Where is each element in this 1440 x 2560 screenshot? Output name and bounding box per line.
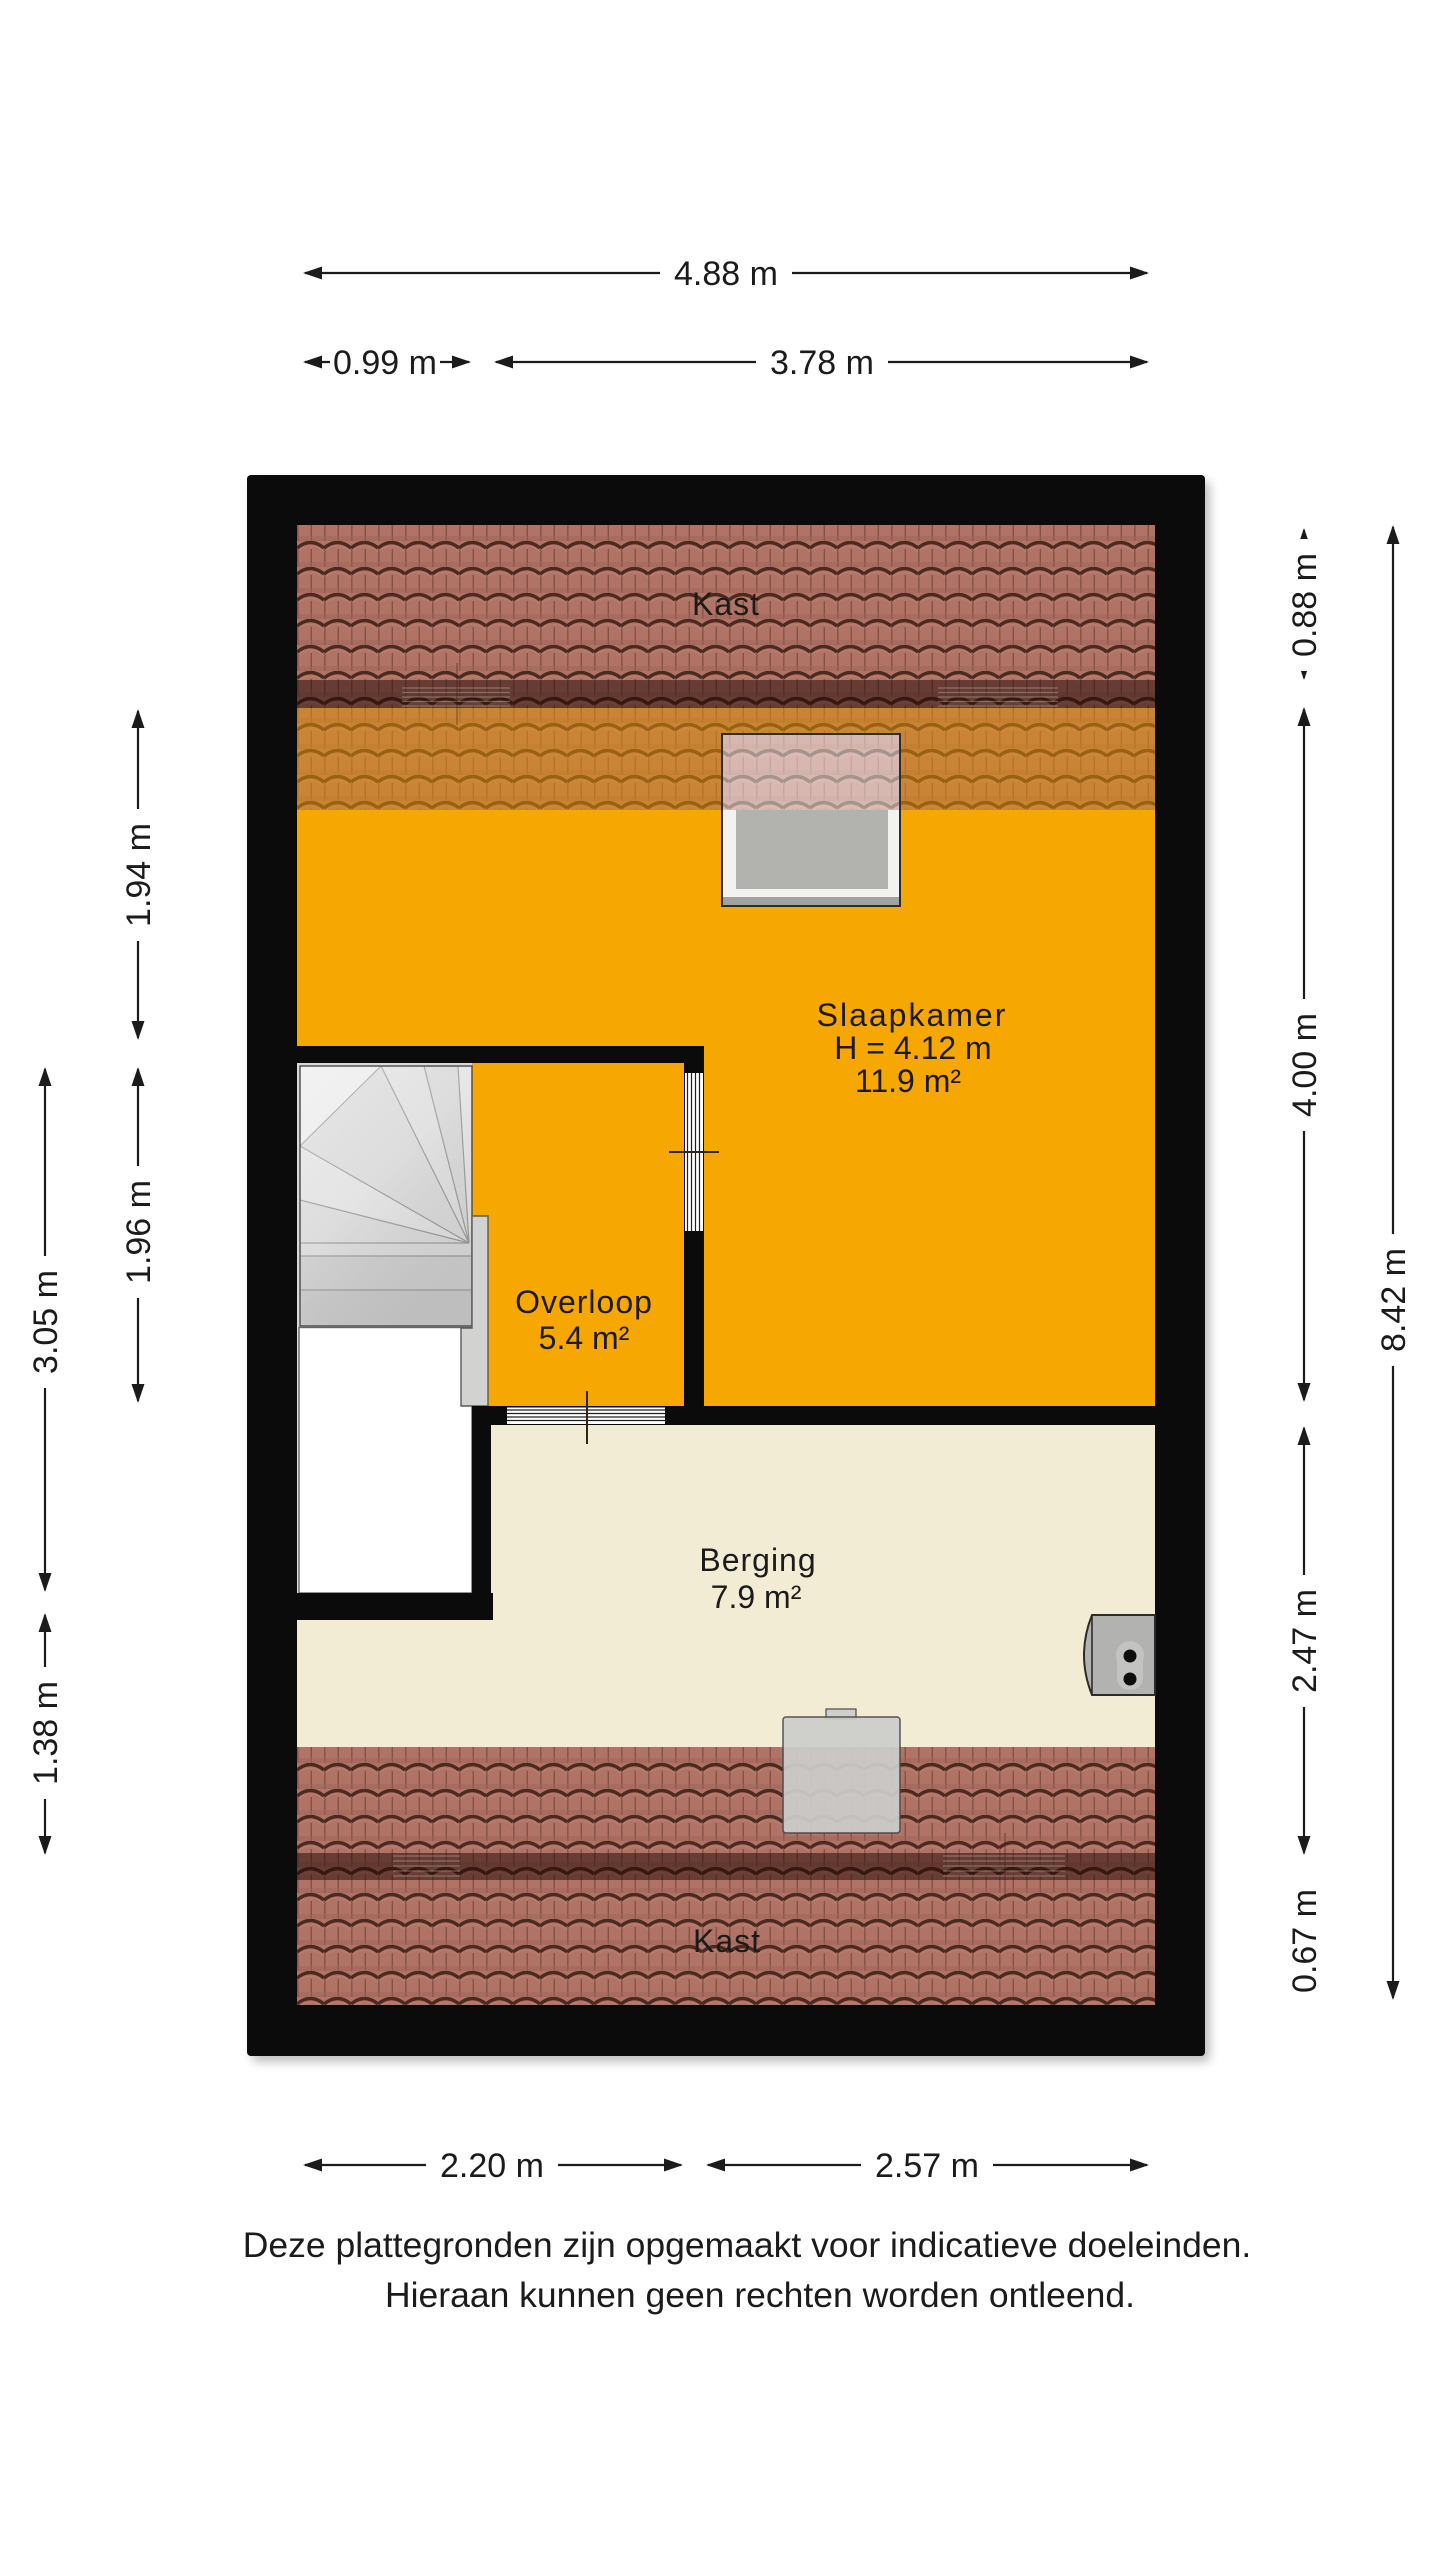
svg-text:3.05 m: 3.05 m bbox=[27, 1270, 65, 1374]
svg-text:2.57 m: 2.57 m bbox=[875, 2147, 979, 2185]
svg-text:1.96 m: 1.96 m bbox=[120, 1180, 158, 1284]
svg-text:Berging: Berging bbox=[699, 1542, 816, 1578]
svg-text:0.67 m: 0.67 m bbox=[1286, 1889, 1324, 1993]
svg-text:2.47 m: 2.47 m bbox=[1286, 1589, 1324, 1693]
svg-text:8.42 m: 8.42 m bbox=[1375, 1248, 1413, 1352]
svg-text:0.88 m: 0.88 m bbox=[1286, 553, 1324, 657]
svg-text:11.9 m²: 11.9 m² bbox=[855, 1063, 961, 1099]
svg-text:Overloop: Overloop bbox=[515, 1284, 653, 1320]
svg-text:1.38 m: 1.38 m bbox=[27, 1681, 65, 1785]
svg-text:7.9 m²: 7.9 m² bbox=[711, 1579, 802, 1615]
svg-text:Kast: Kast bbox=[692, 586, 760, 622]
svg-text:Deze plattegronden zijn opgema: Deze plattegronden zijn opgemaakt voor i… bbox=[243, 2225, 1251, 2265]
svg-text:4.00 m: 4.00 m bbox=[1286, 1013, 1324, 1117]
svg-text:H = 4.12 m: H = 4.12 m bbox=[834, 1030, 991, 1066]
svg-text:3.78 m: 3.78 m bbox=[770, 344, 874, 382]
svg-text:Slaapkamer: Slaapkamer bbox=[817, 997, 1008, 1033]
svg-text:1.94 m: 1.94 m bbox=[120, 823, 158, 927]
svg-text:Kast: Kast bbox=[693, 1923, 761, 1959]
svg-text:Hieraan kunnen geen rechten wo: Hieraan kunnen geen rechten worden ontle… bbox=[385, 2275, 1135, 2315]
svg-text:0.99 m: 0.99 m bbox=[333, 344, 437, 382]
svg-text:5.4 m²: 5.4 m² bbox=[539, 1320, 630, 1356]
svg-text:2.20 m: 2.20 m bbox=[440, 2147, 544, 2185]
svg-text:4.88 m: 4.88 m bbox=[674, 255, 778, 293]
